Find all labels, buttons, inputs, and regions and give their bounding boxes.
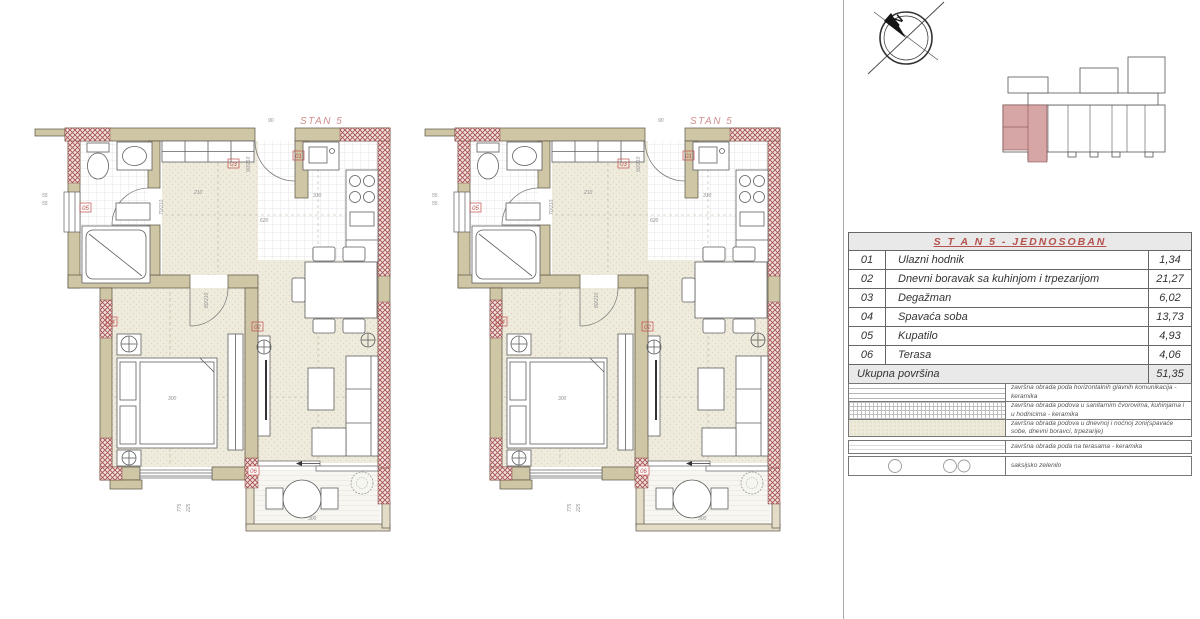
sink xyxy=(123,147,147,166)
legend-row: završna obrada poda horizontalnih glavni… xyxy=(848,383,1192,402)
svg-text:90: 90 xyxy=(268,118,274,124)
table-row: 03 Degažman 6,02 xyxy=(848,289,1192,308)
key-plan-highlighted-unit xyxy=(1003,105,1047,162)
svg-text:90/210: 90/210 xyxy=(246,156,252,172)
architectural-sheet: 55 55 210 310 620 300 775 225 300 90 70/… xyxy=(0,0,1200,619)
room-area: 1,34 xyxy=(1148,251,1191,269)
table-row: 04 Spavaća soba 13,73 xyxy=(848,308,1192,327)
swatch-terrace-ceramic xyxy=(849,441,1006,453)
swatch-living-zone xyxy=(849,420,1006,436)
room-number: 06 xyxy=(849,346,886,364)
room-number: 04 xyxy=(849,308,886,326)
svg-text:225: 225 xyxy=(186,503,192,513)
svg-text:55: 55 xyxy=(42,193,48,199)
legend-text: završna obrada poda horizontalnih glavni… xyxy=(1006,384,1191,401)
legend-row: završna obrada podova u sanitarnim čvoro… xyxy=(848,401,1192,420)
hall-closet xyxy=(162,141,254,162)
pillow xyxy=(120,406,136,444)
radiator-symbol xyxy=(121,336,137,352)
bathroom-shelf xyxy=(116,203,150,220)
svg-text:02: 02 xyxy=(254,325,261,331)
svg-text:05: 05 xyxy=(82,206,89,212)
chair xyxy=(313,319,335,333)
room-area: 13,73 xyxy=(1148,308,1191,326)
room-marker: 06 xyxy=(248,466,259,475)
terrace-table xyxy=(283,480,321,518)
table-row: 06 Terasa 4,06 xyxy=(848,346,1192,365)
room-area: 4,93 xyxy=(1148,327,1191,345)
room-area: 6,02 xyxy=(1148,289,1191,307)
terrace-chair xyxy=(321,488,338,509)
total-area: 51,35 xyxy=(1148,365,1191,383)
bedroom-window xyxy=(140,470,212,478)
svg-text:300: 300 xyxy=(168,396,177,402)
legend-row: završna obrada poda na terasama - kerami… xyxy=(848,440,1192,454)
floor-plan-left: 55 55 210 310 620 300 775 225 300 90 70/… xyxy=(35,116,390,531)
legend-text: završna obrada podova u dnevnoj i noćnoj… xyxy=(1006,420,1191,436)
room-name: Terasa xyxy=(886,346,1148,364)
svg-text:775: 775 xyxy=(177,503,183,512)
coffee-table xyxy=(308,368,334,410)
room-name: Dnevni boravak sa kuhinjom i trpezarijom xyxy=(886,270,1148,288)
bathroom-window xyxy=(64,192,80,232)
room-name: Degažman xyxy=(886,289,1148,307)
room-number: 05 xyxy=(849,327,886,345)
table-row: 05 Kupatilo 4,93 xyxy=(848,327,1192,346)
svg-text:55: 55 xyxy=(42,201,48,207)
svg-text:01: 01 xyxy=(295,154,302,160)
svg-text:04: 04 xyxy=(108,320,115,326)
plan-title: STAN 5 xyxy=(300,116,343,127)
radiator-symbol xyxy=(122,451,136,465)
toilet xyxy=(88,153,109,179)
svg-text:310: 310 xyxy=(313,193,322,199)
materials-legend: završna obrada poda horizontalnih glavni… xyxy=(848,383,1192,476)
svg-text:300: 300 xyxy=(308,516,317,522)
area-table-title: S T A N 5 - JEDNOSOBAN xyxy=(848,232,1192,251)
room-area: 21,27 xyxy=(1148,270,1191,288)
swatch-corridor-ceramic xyxy=(849,384,1006,401)
room-number: 01 xyxy=(849,251,886,269)
key-plan xyxy=(1003,57,1165,162)
legend-text: završna obrada poda na terasama - kerami… xyxy=(1006,441,1191,453)
terrace-chair xyxy=(266,488,283,509)
room-name: Spavaća soba xyxy=(886,308,1148,326)
svg-text:70/210: 70/210 xyxy=(159,199,165,215)
area-table: S T A N 5 - JEDNOSOBAN 01 Ulazni hodnik … xyxy=(848,232,1192,384)
chair xyxy=(292,278,305,302)
pillow xyxy=(120,362,136,400)
sofa xyxy=(346,356,378,456)
chair xyxy=(343,319,365,333)
swatch-potted-greenery xyxy=(849,457,1006,475)
swatch-sanitary-ceramic xyxy=(849,402,1006,419)
oven xyxy=(350,212,374,226)
table-total-row: Ukupna površina 51,35 xyxy=(848,365,1192,384)
svg-text:620: 620 xyxy=(260,218,269,224)
floor-plan-right xyxy=(425,116,780,531)
table-row: 02 Dnevni boravak sa kuhinjom i trpezari… xyxy=(848,270,1192,289)
legend-text: završna obrada podova u sanitarnim čvoro… xyxy=(1006,402,1191,419)
svg-text:06: 06 xyxy=(250,469,257,475)
radiator-symbol xyxy=(257,340,271,354)
legend-row: saksijsko zelenilo xyxy=(848,456,1192,476)
potted-plant xyxy=(351,472,373,494)
chair xyxy=(343,247,365,261)
svg-text:03: 03 xyxy=(230,162,237,168)
room-number: 02 xyxy=(849,270,886,288)
legend-row: završna obrada podova u dnevnoj i noćnoj… xyxy=(848,419,1192,437)
toilet-tank xyxy=(87,143,109,152)
sofa-chaise xyxy=(312,428,346,456)
room-area: 4,06 xyxy=(1148,346,1191,364)
radiator-symbol xyxy=(361,333,375,347)
svg-text:210: 210 xyxy=(193,190,203,196)
svg-text:80/210: 80/210 xyxy=(204,292,210,308)
room-name: Ulazni hodnik xyxy=(886,251,1148,269)
room-number: 03 xyxy=(849,289,886,307)
dining-table xyxy=(305,262,377,318)
room-name: Kupatilo xyxy=(886,327,1148,345)
legend-text: saksijsko zelenilo xyxy=(1006,457,1191,475)
total-label: Ukupna površina xyxy=(849,365,1148,383)
chair xyxy=(313,247,335,261)
north-arrow: N xyxy=(868,2,944,74)
plant-circles-icon xyxy=(849,457,1005,475)
table-row: 01 Ulazni hodnik 1,34 xyxy=(848,251,1192,270)
